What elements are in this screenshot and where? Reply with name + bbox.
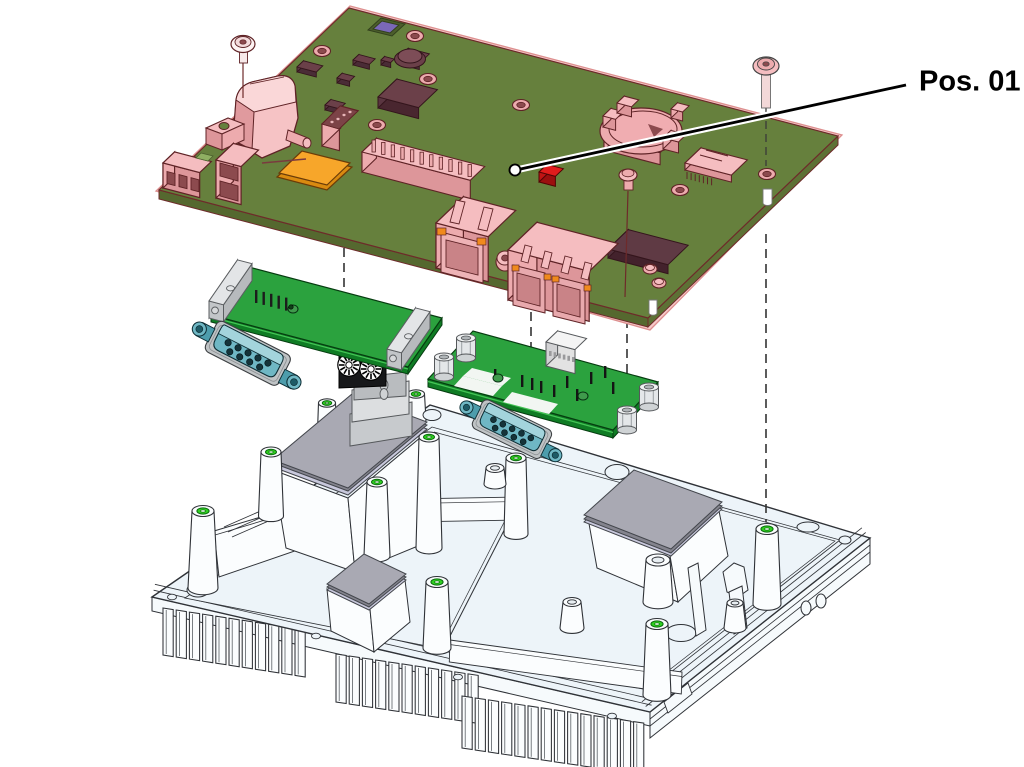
svg-text:Pos. 01: Pos. 01 <box>919 66 1021 98</box>
